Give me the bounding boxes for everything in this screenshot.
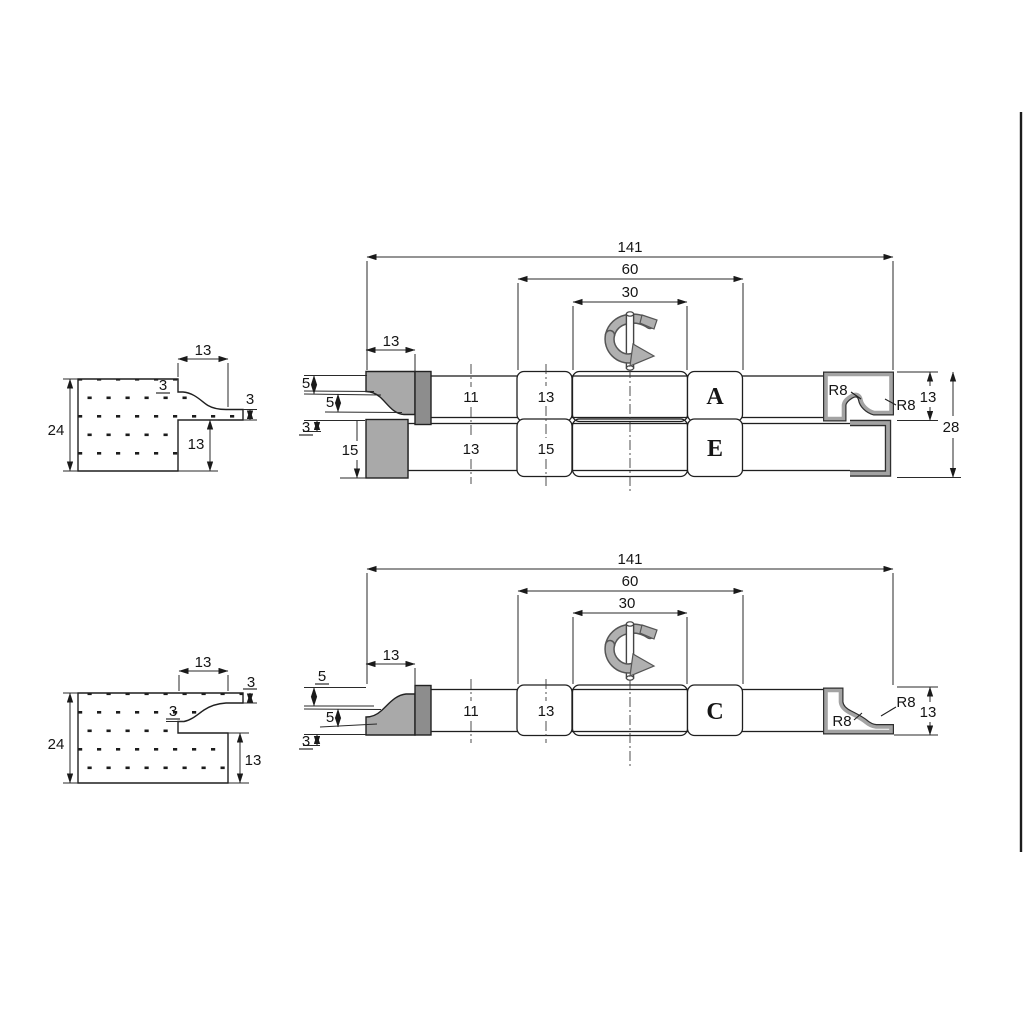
dim-3-step-label: 3 <box>159 377 167 394</box>
workpiece-profile-shape <box>78 693 243 783</box>
radius-r8a-label: R8 <box>896 694 915 711</box>
dim-13-bar-label: 13 <box>463 441 480 458</box>
rotation-direction-icon <box>610 622 657 680</box>
dim-15-block-label: 15 <box>342 442 359 459</box>
dim-13-lower-label: 13 <box>188 436 205 453</box>
rotation-direction-icon <box>610 312 657 370</box>
dim-60-label: 60 <box>622 573 639 590</box>
dim-15-spacer-label: 15 <box>538 441 555 458</box>
dim-24-label: 24 <box>48 422 65 439</box>
bottom-assembly-drawing: 141 60 30 <box>299 551 938 768</box>
shaft-bar <box>425 690 827 732</box>
radius-r8b-label: R8 <box>832 713 851 730</box>
dim-3-label: 3 <box>302 733 310 750</box>
dim-13-cutter-label: 13 <box>383 333 400 350</box>
dim-5b-label: 5 <box>326 709 334 726</box>
dim-28-label: 28 <box>943 419 960 436</box>
dim-13-lower-label: 13 <box>245 752 262 769</box>
dim-3-step-label: 3 <box>169 703 177 720</box>
dim-13-cutter-label: 13 <box>383 647 400 664</box>
radius-r8b-label: R8 <box>896 397 915 414</box>
dim-3-label: 3 <box>302 419 310 436</box>
cutter-shank <box>415 686 431 736</box>
dim-141-label: 141 <box>617 551 642 568</box>
dim-60-label: 60 <box>622 261 639 278</box>
radius-r8a-label: R8 <box>828 382 847 399</box>
head-letter-e: E <box>707 436 723 462</box>
dim-13-right-label: 13 <box>920 704 937 721</box>
profile-cutter-block <box>366 372 415 415</box>
dim-11-label: 11 <box>463 389 479 406</box>
dim-30-label: 30 <box>622 284 639 301</box>
dim-11-label: 11 <box>463 703 479 720</box>
top-left-section-view: 24 13 3 3 13 <box>48 342 257 471</box>
upper-shaft-bar <box>425 376 829 418</box>
dim-13-right-label: 13 <box>920 389 937 406</box>
dim-13-spacer-label: 13 <box>538 389 555 406</box>
drawing-canvas: 24 13 3 3 13 141 60 30 <box>0 0 1024 1024</box>
channel-template-e <box>850 423 888 474</box>
dim-3-tongue-label: 3 <box>247 674 255 691</box>
top-assembly-drawing: 141 60 30 <box>299 239 961 492</box>
head-letter-c: C <box>706 699 723 725</box>
dim-13-top-label: 13 <box>195 342 212 359</box>
cutter-shank <box>415 372 431 425</box>
dim-5a-label: 5 <box>318 668 326 685</box>
dim-13-top-label: 13 <box>195 654 212 671</box>
dim-3-tongue-label: 3 <box>246 391 254 408</box>
bottom-left-section-view: 24 13 3 3 13 <box>48 654 262 783</box>
dim-141-label: 141 <box>617 239 642 256</box>
cutter-width-dim <box>366 664 415 692</box>
dim-13-spacer-label: 13 <box>538 703 555 720</box>
profile-cutter-block <box>366 694 415 735</box>
dim-30-label: 30 <box>619 595 636 612</box>
technical-drawing: 24 13 3 3 13 141 60 30 <box>0 0 1024 1024</box>
dim-5b-label: 5 <box>326 394 334 411</box>
head-letter-a: A <box>706 384 724 410</box>
dim-5a-label: 5 <box>302 375 310 392</box>
lower-cutter-block <box>366 420 408 479</box>
cutter-width-dim <box>366 350 415 372</box>
dim-24-label: 24 <box>48 736 65 753</box>
